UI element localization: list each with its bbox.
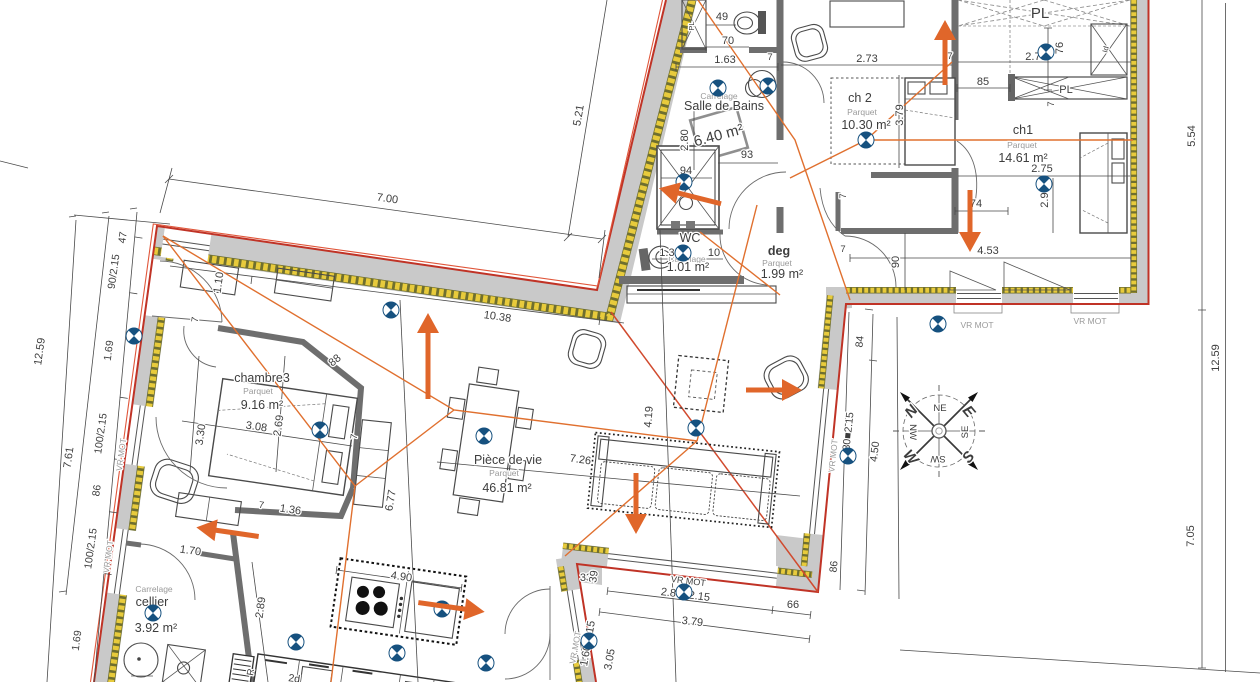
svg-text:VR MOT: VR MOT	[960, 320, 993, 330]
svg-text:90: 90	[890, 256, 902, 268]
svg-text:PL: PL	[1031, 5, 1049, 22]
svg-text:10.30 m²: 10.30 m²	[841, 118, 890, 132]
svg-text:SE: SE	[960, 426, 971, 439]
svg-text:4.50: 4.50	[868, 441, 882, 463]
svg-text:Parquet: Parquet	[1007, 140, 1037, 150]
svg-text:70: 70	[722, 35, 734, 47]
svg-text:39: 39	[587, 570, 601, 584]
svg-text:86: 86	[827, 560, 840, 573]
svg-text:VR MOT: VR MOT	[1073, 316, 1106, 326]
svg-text:WC: WC	[680, 231, 701, 245]
svg-text:3.92 m²: 3.92 m²	[135, 621, 177, 635]
svg-text:4.53: 4.53	[977, 245, 998, 257]
svg-text:7: 7	[947, 51, 952, 62]
svg-text:PL: PL	[687, 21, 696, 30]
svg-text:7: 7	[1046, 101, 1057, 106]
svg-text:76: 76	[1054, 42, 1066, 54]
svg-text:66: 66	[787, 599, 799, 611]
svg-text:1.99 m²: 1.99 m²	[761, 267, 803, 281]
svg-text:2d: 2d	[288, 672, 301, 682]
svg-text:Pièce de vie: Pièce de vie	[474, 453, 542, 467]
svg-text:1.01 m²: 1.01 m²	[667, 260, 709, 274]
svg-text:46.81 m²: 46.81 m²	[482, 481, 531, 495]
svg-text:PL: PL	[1059, 84, 1072, 96]
svg-text:Salle de Bains: Salle de Bains	[684, 99, 764, 113]
svg-text:4.19: 4.19	[642, 406, 655, 428]
svg-text:12.59: 12.59	[1210, 344, 1222, 372]
svg-text:85: 85	[977, 76, 989, 88]
svg-text:Parquet: Parquet	[489, 468, 519, 478]
svg-text:93: 93	[741, 149, 753, 161]
svg-text:47: 47	[116, 231, 130, 244]
svg-text:2.80: 2.80	[679, 129, 691, 150]
svg-text:2.73: 2.73	[856, 53, 877, 65]
svg-text:Carrelage: Carrelage	[135, 584, 173, 594]
svg-text:chambre3: chambre3	[234, 371, 290, 385]
svg-text:1.63: 1.63	[714, 54, 735, 66]
svg-text:2.75: 2.75	[1031, 163, 1052, 175]
svg-text:NW: NW	[907, 424, 918, 440]
svg-text:deg: deg	[768, 244, 790, 258]
svg-text:Parquet: Parquet	[847, 107, 877, 117]
svg-text:84: 84	[853, 335, 866, 348]
svg-text:9.16 m²: 9.16 m²	[241, 398, 283, 412]
svg-text:10: 10	[708, 247, 720, 259]
svg-text:3.79: 3.79	[894, 104, 906, 125]
svg-text:7: 7	[838, 193, 849, 198]
svg-text:SW: SW	[930, 453, 945, 464]
svg-text:7: 7	[767, 52, 772, 63]
svg-text:Parquet: Parquet	[243, 386, 273, 396]
svg-text:86: 86	[90, 484, 104, 497]
svg-text:49: 49	[716, 11, 728, 23]
svg-text:ch 2: ch 2	[848, 91, 872, 105]
svg-text:5.54: 5.54	[1186, 125, 1198, 146]
svg-text:NE: NE	[933, 403, 946, 414]
svg-text:ch1: ch1	[1013, 123, 1033, 137]
svg-text:7.05: 7.05	[1185, 525, 1197, 546]
svg-text:7: 7	[840, 244, 845, 255]
